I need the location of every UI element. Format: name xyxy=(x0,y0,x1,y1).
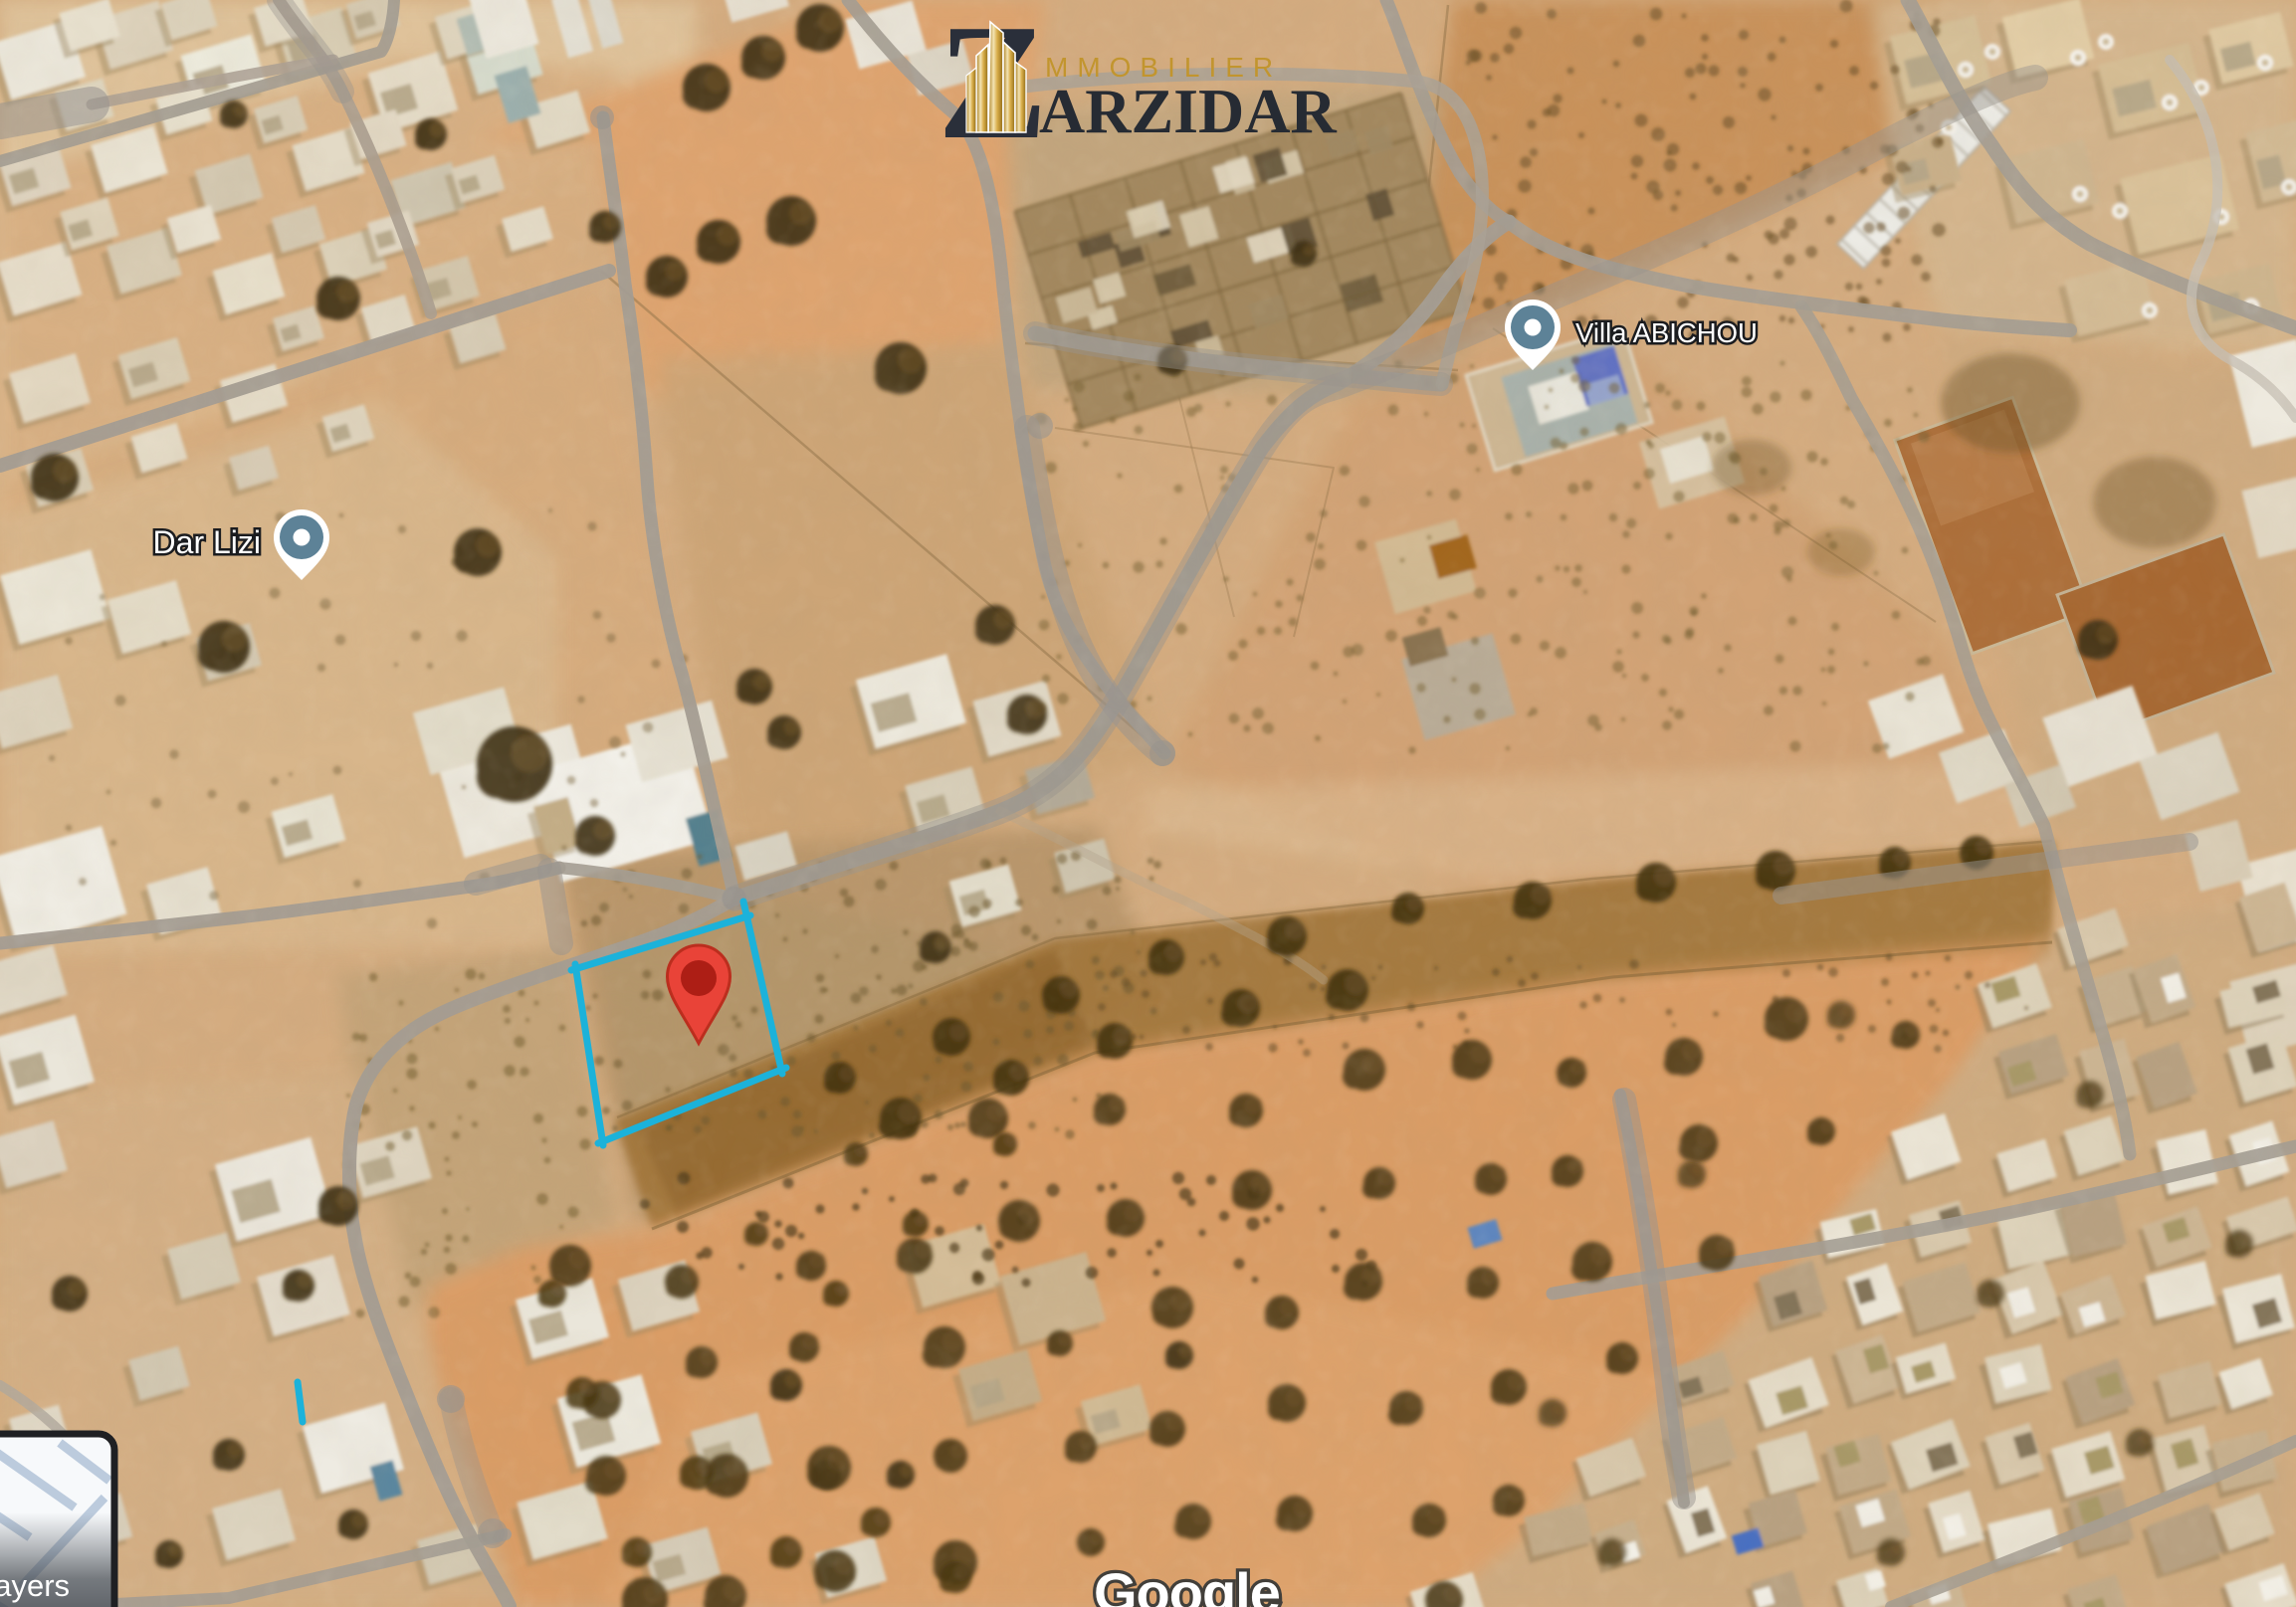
svg-text:Dar Lizi: Dar Lizi xyxy=(153,524,261,560)
svg-text:ARZIDAR: ARZIDAR xyxy=(1039,76,1337,146)
svg-text:Layers: Layers xyxy=(0,1568,70,1603)
svg-text:Google: Google xyxy=(1094,1561,1280,1607)
svg-text:Villa ABICHOU: Villa ABICHOU xyxy=(1575,317,1758,348)
